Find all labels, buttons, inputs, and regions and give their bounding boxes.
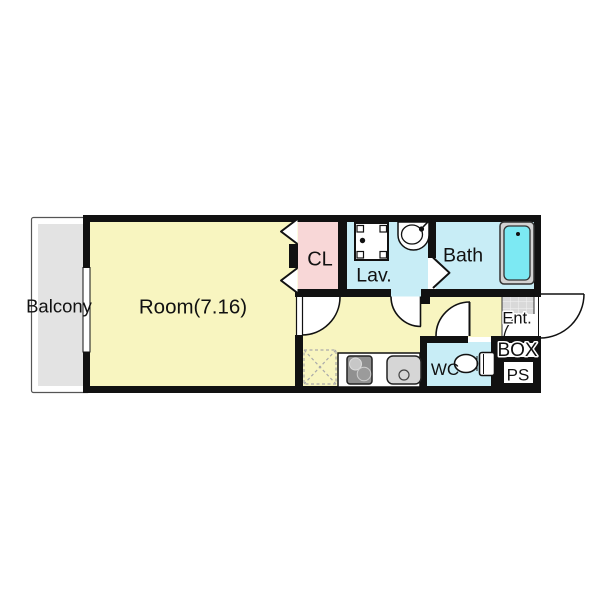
room-label: Room(7.16) <box>139 296 247 319</box>
stove <box>347 356 372 384</box>
bathtub <box>500 222 534 284</box>
pipe-space-label: PS <box>507 366 530 385</box>
bath-label: Bath <box>443 245 483 267</box>
floor-plan: Balcony Room(7.16) CL Lav. Bath WC Ent. … <box>0 0 611 611</box>
closet-label: CL <box>307 249 333 271</box>
floor-plan-page: Balcony Room(7.16) CL Lav. Bath WC Ent. … <box>0 0 611 611</box>
kitchen-sink <box>387 356 421 384</box>
balcony-label: Balcony <box>26 296 93 317</box>
washing-machine <box>355 223 388 260</box>
box-label: BOX <box>497 340 537 361</box>
lavatory-label: Lav. <box>356 265 391 287</box>
wc-label: WC <box>431 360 459 379</box>
entrance-label: Ent. <box>502 310 531 328</box>
